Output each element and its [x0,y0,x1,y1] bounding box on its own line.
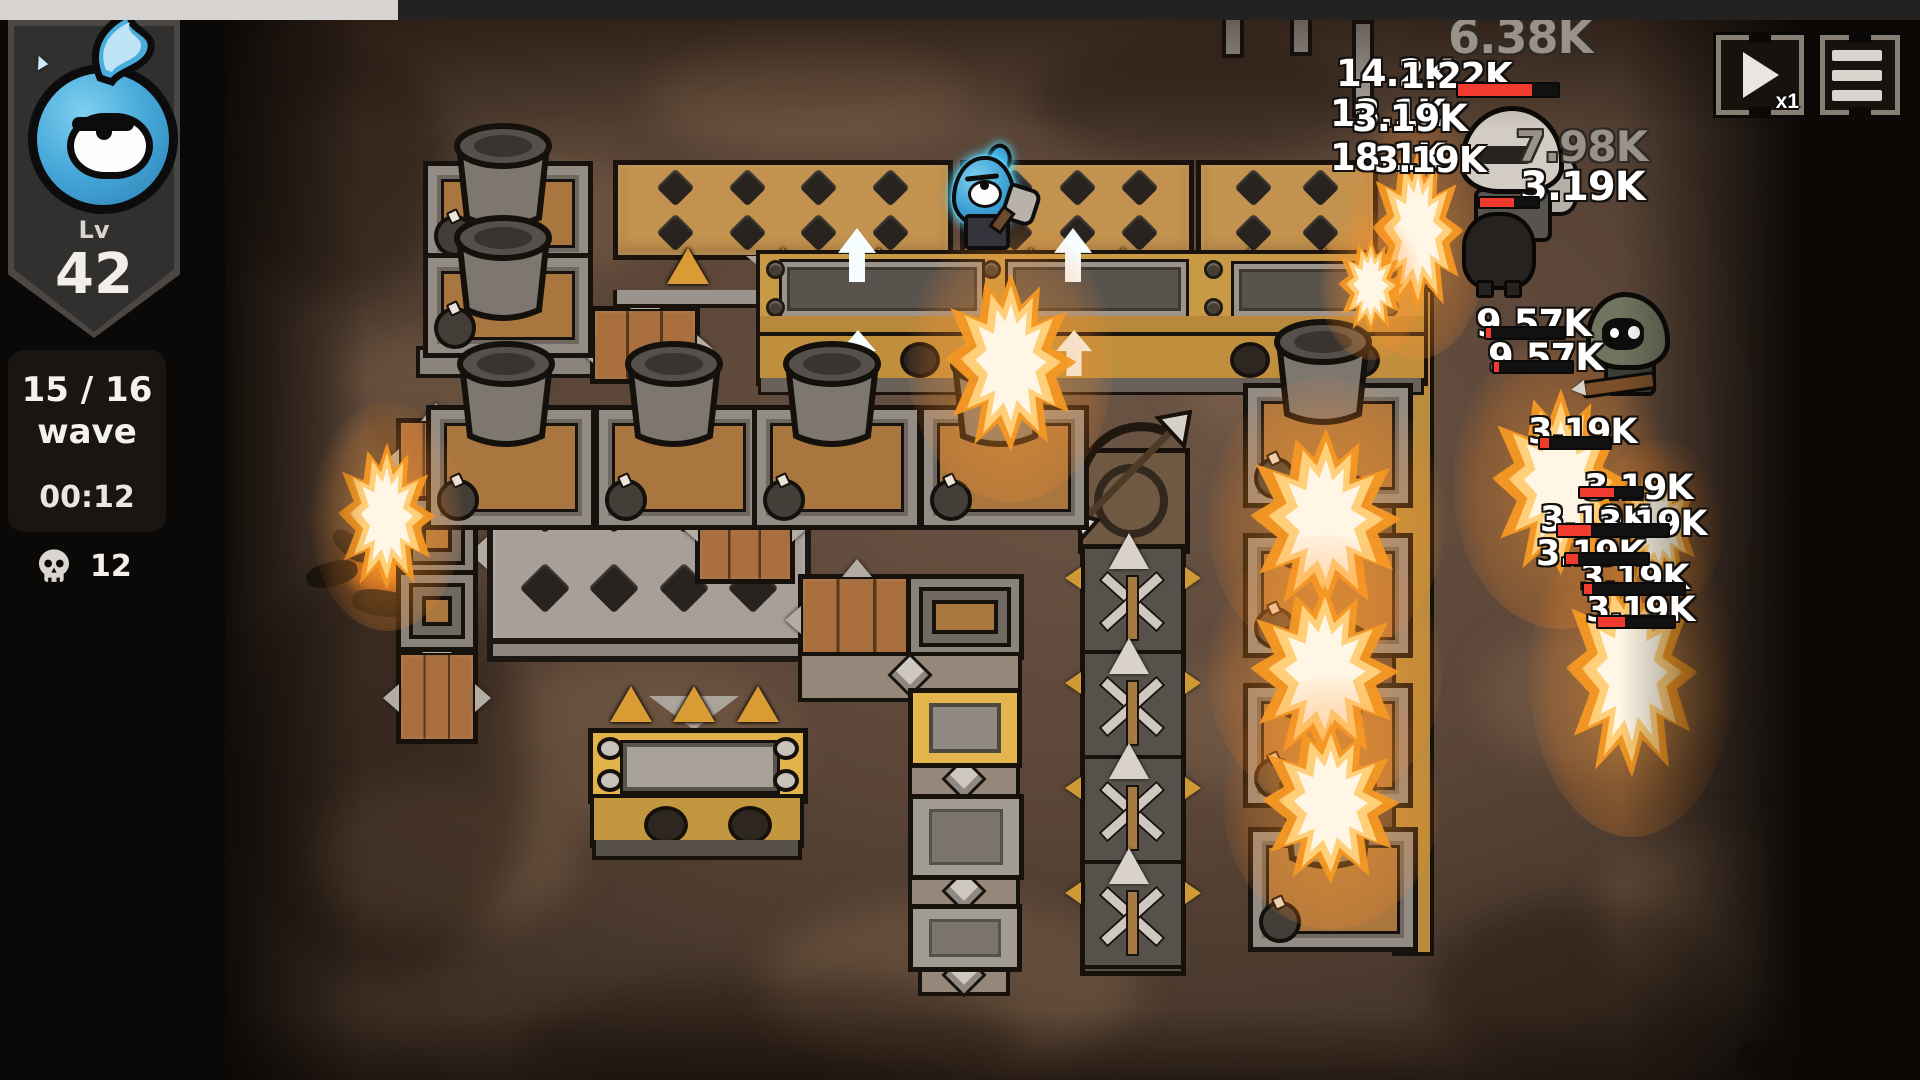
diamond-stud [1235,168,1273,206]
nested-trap[interactable] [906,574,1024,660]
ballista-tower[interactable] [1078,424,1184,546]
bomb-icon [930,479,972,521]
mortar-tower[interactable] [1248,752,1408,942]
ground-shadow [230,560,530,980]
diamond-stud [1235,213,1273,251]
level-value: 42 [8,242,180,307]
ground-patch [300,780,580,930]
diamond-stud [1058,168,1096,206]
ground-patch [1480,620,1720,770]
wooden-crate[interactable] [396,650,478,744]
bomb-icon [437,479,479,521]
arrow-trap-tower[interactable] [1080,544,1186,976]
arrow-ground-mark [1787,491,1830,523]
level-label: Lv [8,216,180,244]
battlefield[interactable] [0,0,1920,1080]
wooden-crate[interactable] [798,574,916,660]
play-icon [1743,52,1779,98]
mortar-pot [454,334,558,450]
bomb-icon [605,479,647,521]
campfire-smoke [316,413,382,549]
diamond-stud [800,213,838,251]
bomb-icon [763,479,805,521]
mortar-tower[interactable] [919,330,1079,520]
diamond-stud [519,563,570,614]
gray-panel-trap[interactable] [908,904,1022,972]
mortar-pot [622,334,726,450]
speed-label: x1 [1776,90,1799,114]
ground-patch [1600,830,1880,1000]
mortar-pot [1271,462,1375,578]
diamond-stud [728,168,766,206]
gray-panel-trap[interactable] [908,794,1024,880]
diamond-stud [871,168,909,206]
mortar-pot [451,208,555,324]
archer-eye [1610,328,1619,338]
hud-panel: Lv 42 15 / 16 wave 00:12 12 [0,0,225,1080]
diamond-stud [1121,168,1159,206]
avatar-eye [67,113,153,179]
mortar-tower[interactable] [752,330,912,520]
diamond-stud [657,168,695,206]
ground-shadow [230,40,450,300]
ground-shadow [1430,900,1730,1080]
mortar-tower[interactable] [426,330,586,520]
flame-effect [1566,566,1698,778]
hamburger-icon [1832,50,1882,101]
minion-leg [1476,280,1494,298]
mortar-tower[interactable] [594,330,754,520]
knight-visor [1478,146,1534,164]
player-character[interactable] [952,156,1032,256]
game-screen: 6.38K14.2K1.22K13.1K3.19K18.1K3.19K7.98K… [0,0,1920,1080]
top-strip-dark [398,0,1920,20]
diamond-stud [800,168,838,206]
minion-leg [1504,280,1522,298]
diamond-stud [1301,213,1339,251]
fence-post [1352,20,1374,118]
enemy-hooded-archer[interactable] [1580,292,1670,402]
bomb-icon [1259,901,1301,943]
mortar-pot [1276,756,1380,872]
mortar-pot [1271,612,1375,728]
ground-patch [650,40,970,150]
wave-timer: 00:12 [8,480,166,515]
minion-body [1462,212,1536,290]
flame-effect [1618,470,1700,582]
menu-button[interactable] [1817,32,1903,118]
ground-shadow [1030,40,1370,160]
mortar-pot [780,334,884,450]
diamond-stud [657,213,695,251]
archer-eye [1628,326,1640,339]
diamond-stud [1121,213,1159,251]
mortar-pot [1271,312,1375,428]
wave-progress: 15 / 16 [8,370,166,410]
kill-counter: 12 [34,544,194,588]
mortar-pot [947,334,1051,450]
wave-label: wave [8,412,166,452]
diamond-stud [1301,168,1339,206]
diamond-stud [589,563,640,614]
flame-effect [1492,388,1630,576]
diamond-stud [871,213,909,251]
ground-skull-doodle [1736,1040,1788,1076]
gold-panel-trap[interactable] [908,688,1022,768]
level-banner: Lv 42 [8,20,180,338]
nested-trap[interactable] [396,570,478,652]
arrow-ground-mark [1793,413,1836,445]
top-strip-light [0,0,398,20]
kill-count: 12 [90,549,132,584]
crate-wedge [842,559,872,577]
gold-spike-trap[interactable] [588,694,800,870]
wave-card: 15 / 16 wave 00:12 [8,350,166,532]
mortar-tower[interactable] [423,208,583,348]
play-speed-button[interactable]: x1 [1713,32,1807,118]
skull-icon [34,546,74,586]
enemy-minion[interactable] [1462,212,1536,290]
diamond-stud [728,213,766,251]
player-eye [968,180,1002,208]
